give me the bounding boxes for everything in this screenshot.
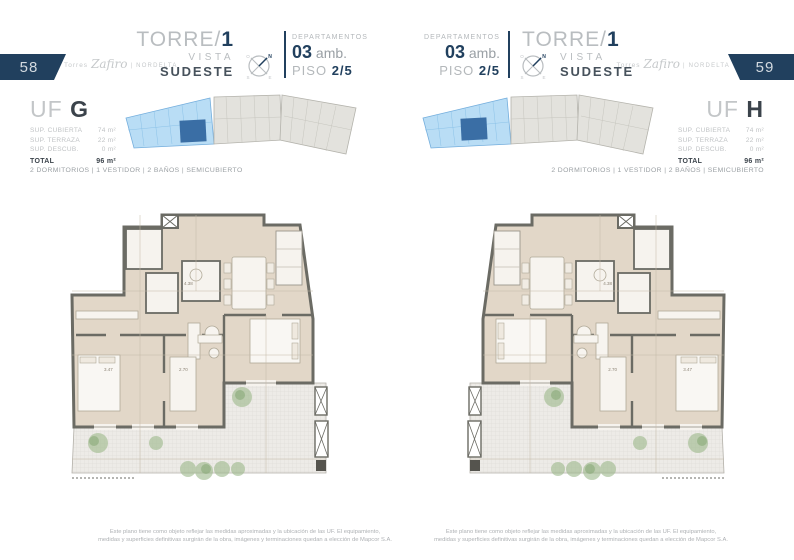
dimension-label: 3.47	[104, 367, 113, 372]
dimension-label: 2.70	[179, 367, 188, 372]
brand-zafiro: Zafiro	[644, 57, 680, 71]
unit-info: UF H SUP. CUBIERTA74 m² SUP. TERRAZA22 m…	[678, 97, 764, 166]
disclaimer-line2: medidas y superficies definitivas surgir…	[92, 537, 398, 545]
total-label: TOTAL	[678, 157, 702, 167]
page-number-badge: 59	[728, 54, 794, 80]
surface-label: SUP. TERRAZA	[678, 136, 728, 146]
surface-value: 22 m²	[746, 136, 764, 146]
brand-logo: Torres Zafiro | NORDELTA	[616, 60, 730, 71]
floorplan: 3.47 2.70 4.38	[424, 207, 760, 507]
title-block: TORRE/1 VISTA SUDESTE	[114, 29, 234, 80]
surface-row: SUP. CUBIERTA74 m²	[678, 126, 764, 136]
total-value: 96 m²	[744, 157, 764, 167]
surface-value: 0 m²	[102, 145, 116, 155]
surface-label: SUP. CUBIERTA	[678, 126, 730, 136]
piso-value: 2/5	[332, 63, 353, 78]
amb-word: amb.	[469, 45, 500, 61]
title-block: TORRE/1 VISTA SUDESTE	[522, 29, 652, 80]
amenities-line: 2 DORMITORIOS | 1 VESTIDOR | 2 BAÑOS | S…	[551, 167, 764, 174]
uf-letter: G	[70, 96, 89, 122]
compass-n: N	[268, 54, 272, 60]
disclaimer-line1: Este plano tiene como objeto reflejar la…	[92, 529, 398, 537]
uf-label: UF	[30, 96, 63, 122]
highlighted-unit	[179, 119, 206, 142]
surface-row: SUP. CUBIERTA74 m²	[30, 126, 116, 136]
surface-label: SUP. DESCUB.	[30, 145, 79, 155]
building-keyplan	[415, 86, 677, 170]
surface-row: SUP. TERRAZA22 m²	[678, 136, 764, 146]
surface-total-row: TOTAL96 m²	[30, 157, 116, 167]
disclaimer-line1: Este plano tiene como objeto reflejar la…	[428, 529, 734, 537]
torre-label: TORRE/	[136, 28, 221, 51]
compass-icon: N O S E	[242, 49, 276, 83]
compass-e: E	[268, 75, 271, 80]
unit-info: UF G SUP. CUBIERTA74 m² SUP. TERRAZA22 m…	[30, 97, 116, 166]
dimension-label: 4.38	[184, 281, 193, 286]
piso-value: 2/5	[479, 63, 500, 78]
unit-name: UF G	[30, 97, 116, 121]
surface-label: SUP. TERRAZA	[30, 136, 80, 146]
surface-value: 74 m²	[746, 126, 764, 136]
compass-o: O	[246, 54, 250, 59]
department-block: DEPARTAMENTOS 03 amb. PISO 2/5	[292, 33, 368, 79]
torre-label: TORRE/	[522, 28, 607, 51]
dimension-label: 2.70	[608, 367, 617, 372]
piso-line: PISO 2/5	[396, 63, 500, 79]
surface-total-row: TOTAL96 m²	[678, 157, 764, 167]
torre-title: TORRE/1	[114, 29, 234, 51]
surface-value: 74 m²	[98, 126, 116, 136]
brand-nordelta: | NORDELTA	[683, 63, 730, 69]
piso-line: PISO 2/5	[292, 63, 368, 79]
amb-number: 03	[445, 42, 465, 62]
surface-label: SUP. CUBIERTA	[30, 126, 82, 136]
header-divider	[508, 31, 510, 78]
amb-line: 03 amb.	[396, 43, 500, 63]
uf-letter: H	[746, 96, 764, 122]
surface-row: SUP. DESCUB.0 m²	[30, 145, 116, 155]
unit-name: UF H	[678, 97, 764, 121]
surface-table: SUP. CUBIERTA74 m² SUP. TERRAZA22 m² SUP…	[30, 126, 116, 166]
disclaimer: Este plano tiene como objeto reflejar la…	[428, 529, 734, 544]
surface-value: 22 m²	[98, 136, 116, 146]
total-value: 96 m²	[96, 157, 116, 167]
brochure-spread: 58 Torres Zafiro | NORDELTA TORRE/1 VIST…	[0, 0, 794, 560]
torre-number: 1	[221, 28, 234, 51]
amb-number: 03	[292, 42, 312, 62]
dimension-label: 4.38	[603, 281, 612, 286]
amb-word: amb.	[316, 45, 347, 61]
total-label: TOTAL	[30, 157, 54, 167]
torre-title: TORRE/1	[522, 29, 652, 51]
disclaimer: Este plano tiene como objeto reflejar la…	[92, 529, 398, 544]
torre-number: 1	[607, 28, 620, 51]
surface-value: 0 m²	[750, 145, 764, 155]
surface-label: SUP. DESCUB.	[678, 145, 727, 155]
uf-label: UF	[706, 96, 739, 122]
building-keyplan	[118, 86, 380, 170]
page-number-badge: 58	[0, 54, 66, 80]
brand-torres: Torres	[64, 62, 88, 69]
amenities-line: 2 DORMITORIOS | 1 VESTIDOR | 2 BAÑOS | S…	[30, 167, 243, 174]
amb-line: 03 amb.	[292, 43, 368, 63]
department-block: DEPARTAMENTOS 03 amb. PISO 2/5	[396, 33, 500, 79]
disclaimer-line2: medidas y superficies definitivas surgir…	[428, 537, 734, 545]
piso-label: PISO	[439, 63, 474, 78]
piso-label: PISO	[292, 63, 327, 78]
surface-row: SUP. DESCUB.0 m²	[678, 145, 764, 155]
orientation-label: SUDESTE	[114, 64, 234, 80]
surface-row: SUP. TERRAZA22 m²	[30, 136, 116, 146]
vista-label: VISTA	[114, 51, 234, 64]
surface-table: SUP. CUBIERTA74 m² SUP. TERRAZA22 m² SUP…	[678, 126, 764, 166]
compass-s: S	[246, 75, 249, 80]
header-divider	[284, 31, 286, 78]
brand-torres: Torres	[616, 62, 640, 69]
floorplan: 3.47 2.70 4.38	[36, 207, 372, 507]
dimension-label: 3.47	[683, 367, 692, 372]
highlighted-unit	[460, 117, 487, 140]
